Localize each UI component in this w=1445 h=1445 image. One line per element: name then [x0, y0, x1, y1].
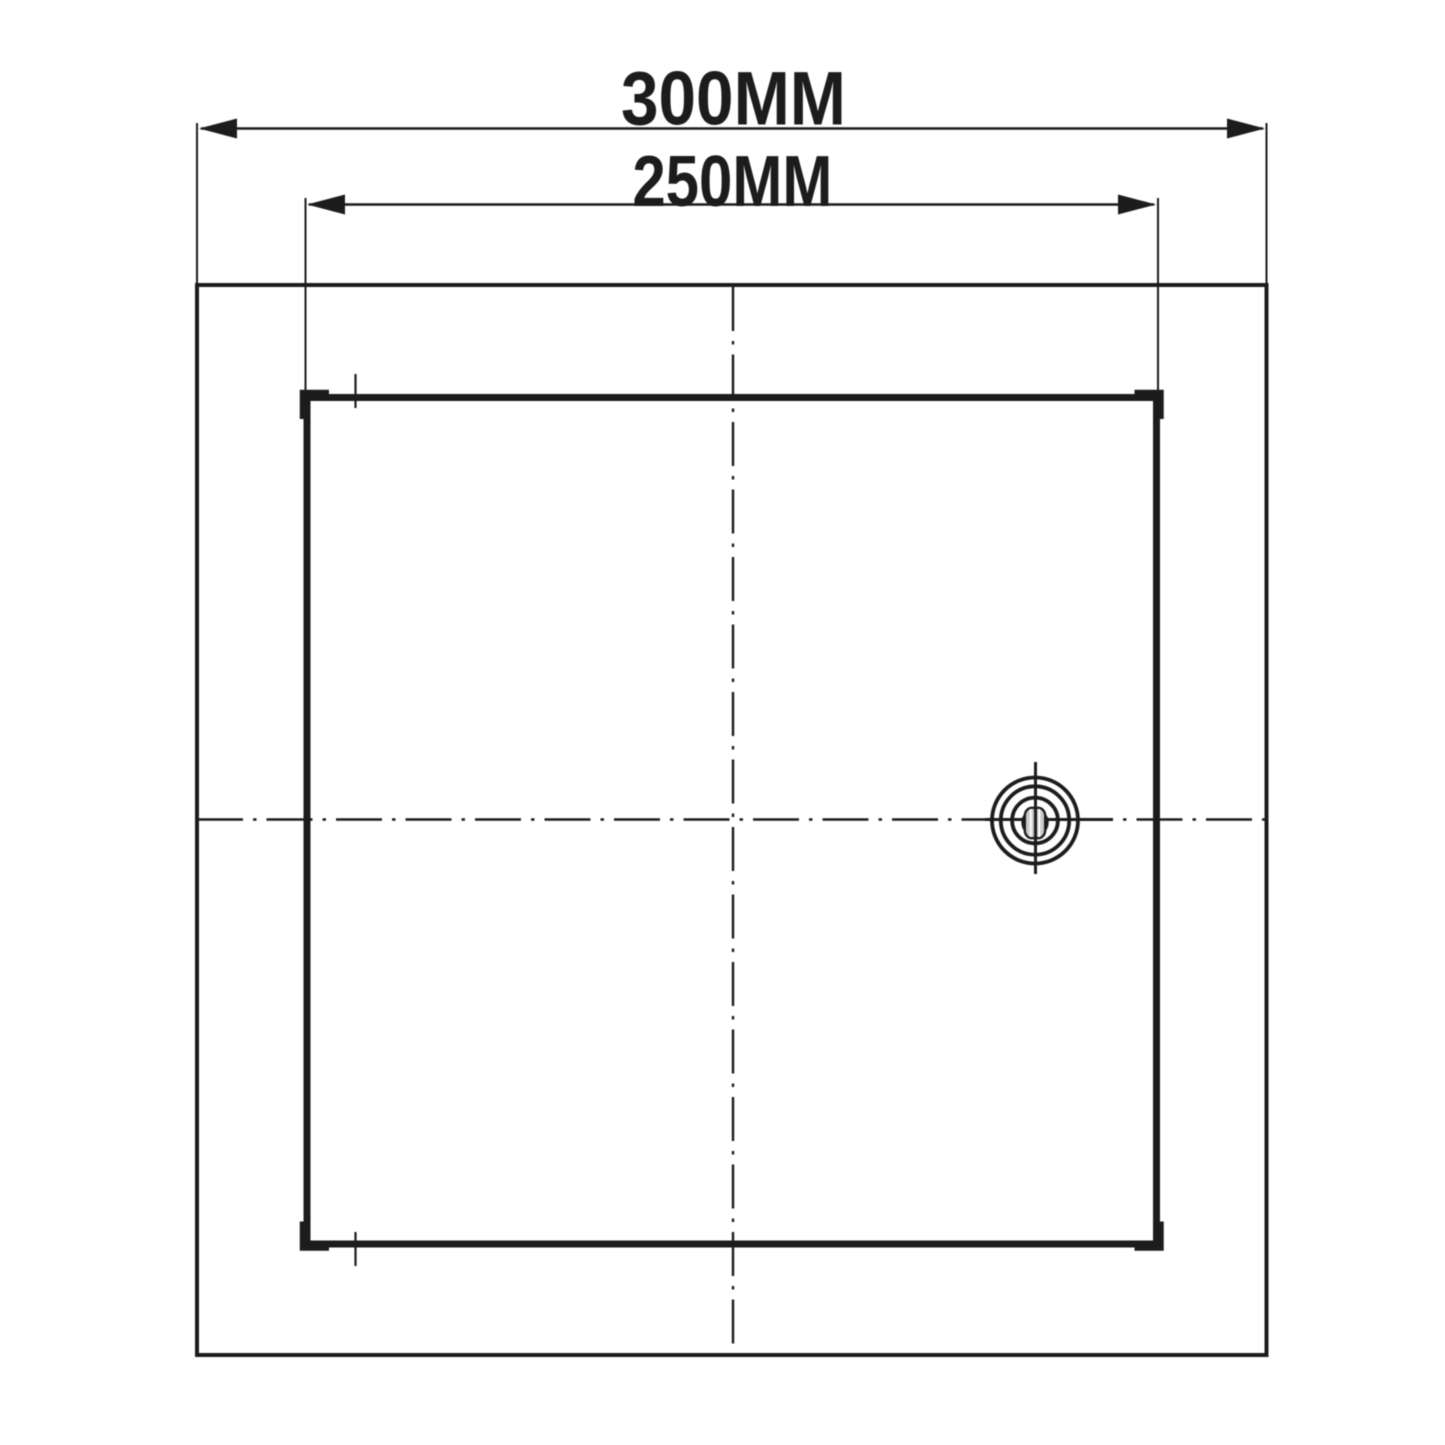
svg-text:250MM: 250MM: [632, 142, 832, 222]
